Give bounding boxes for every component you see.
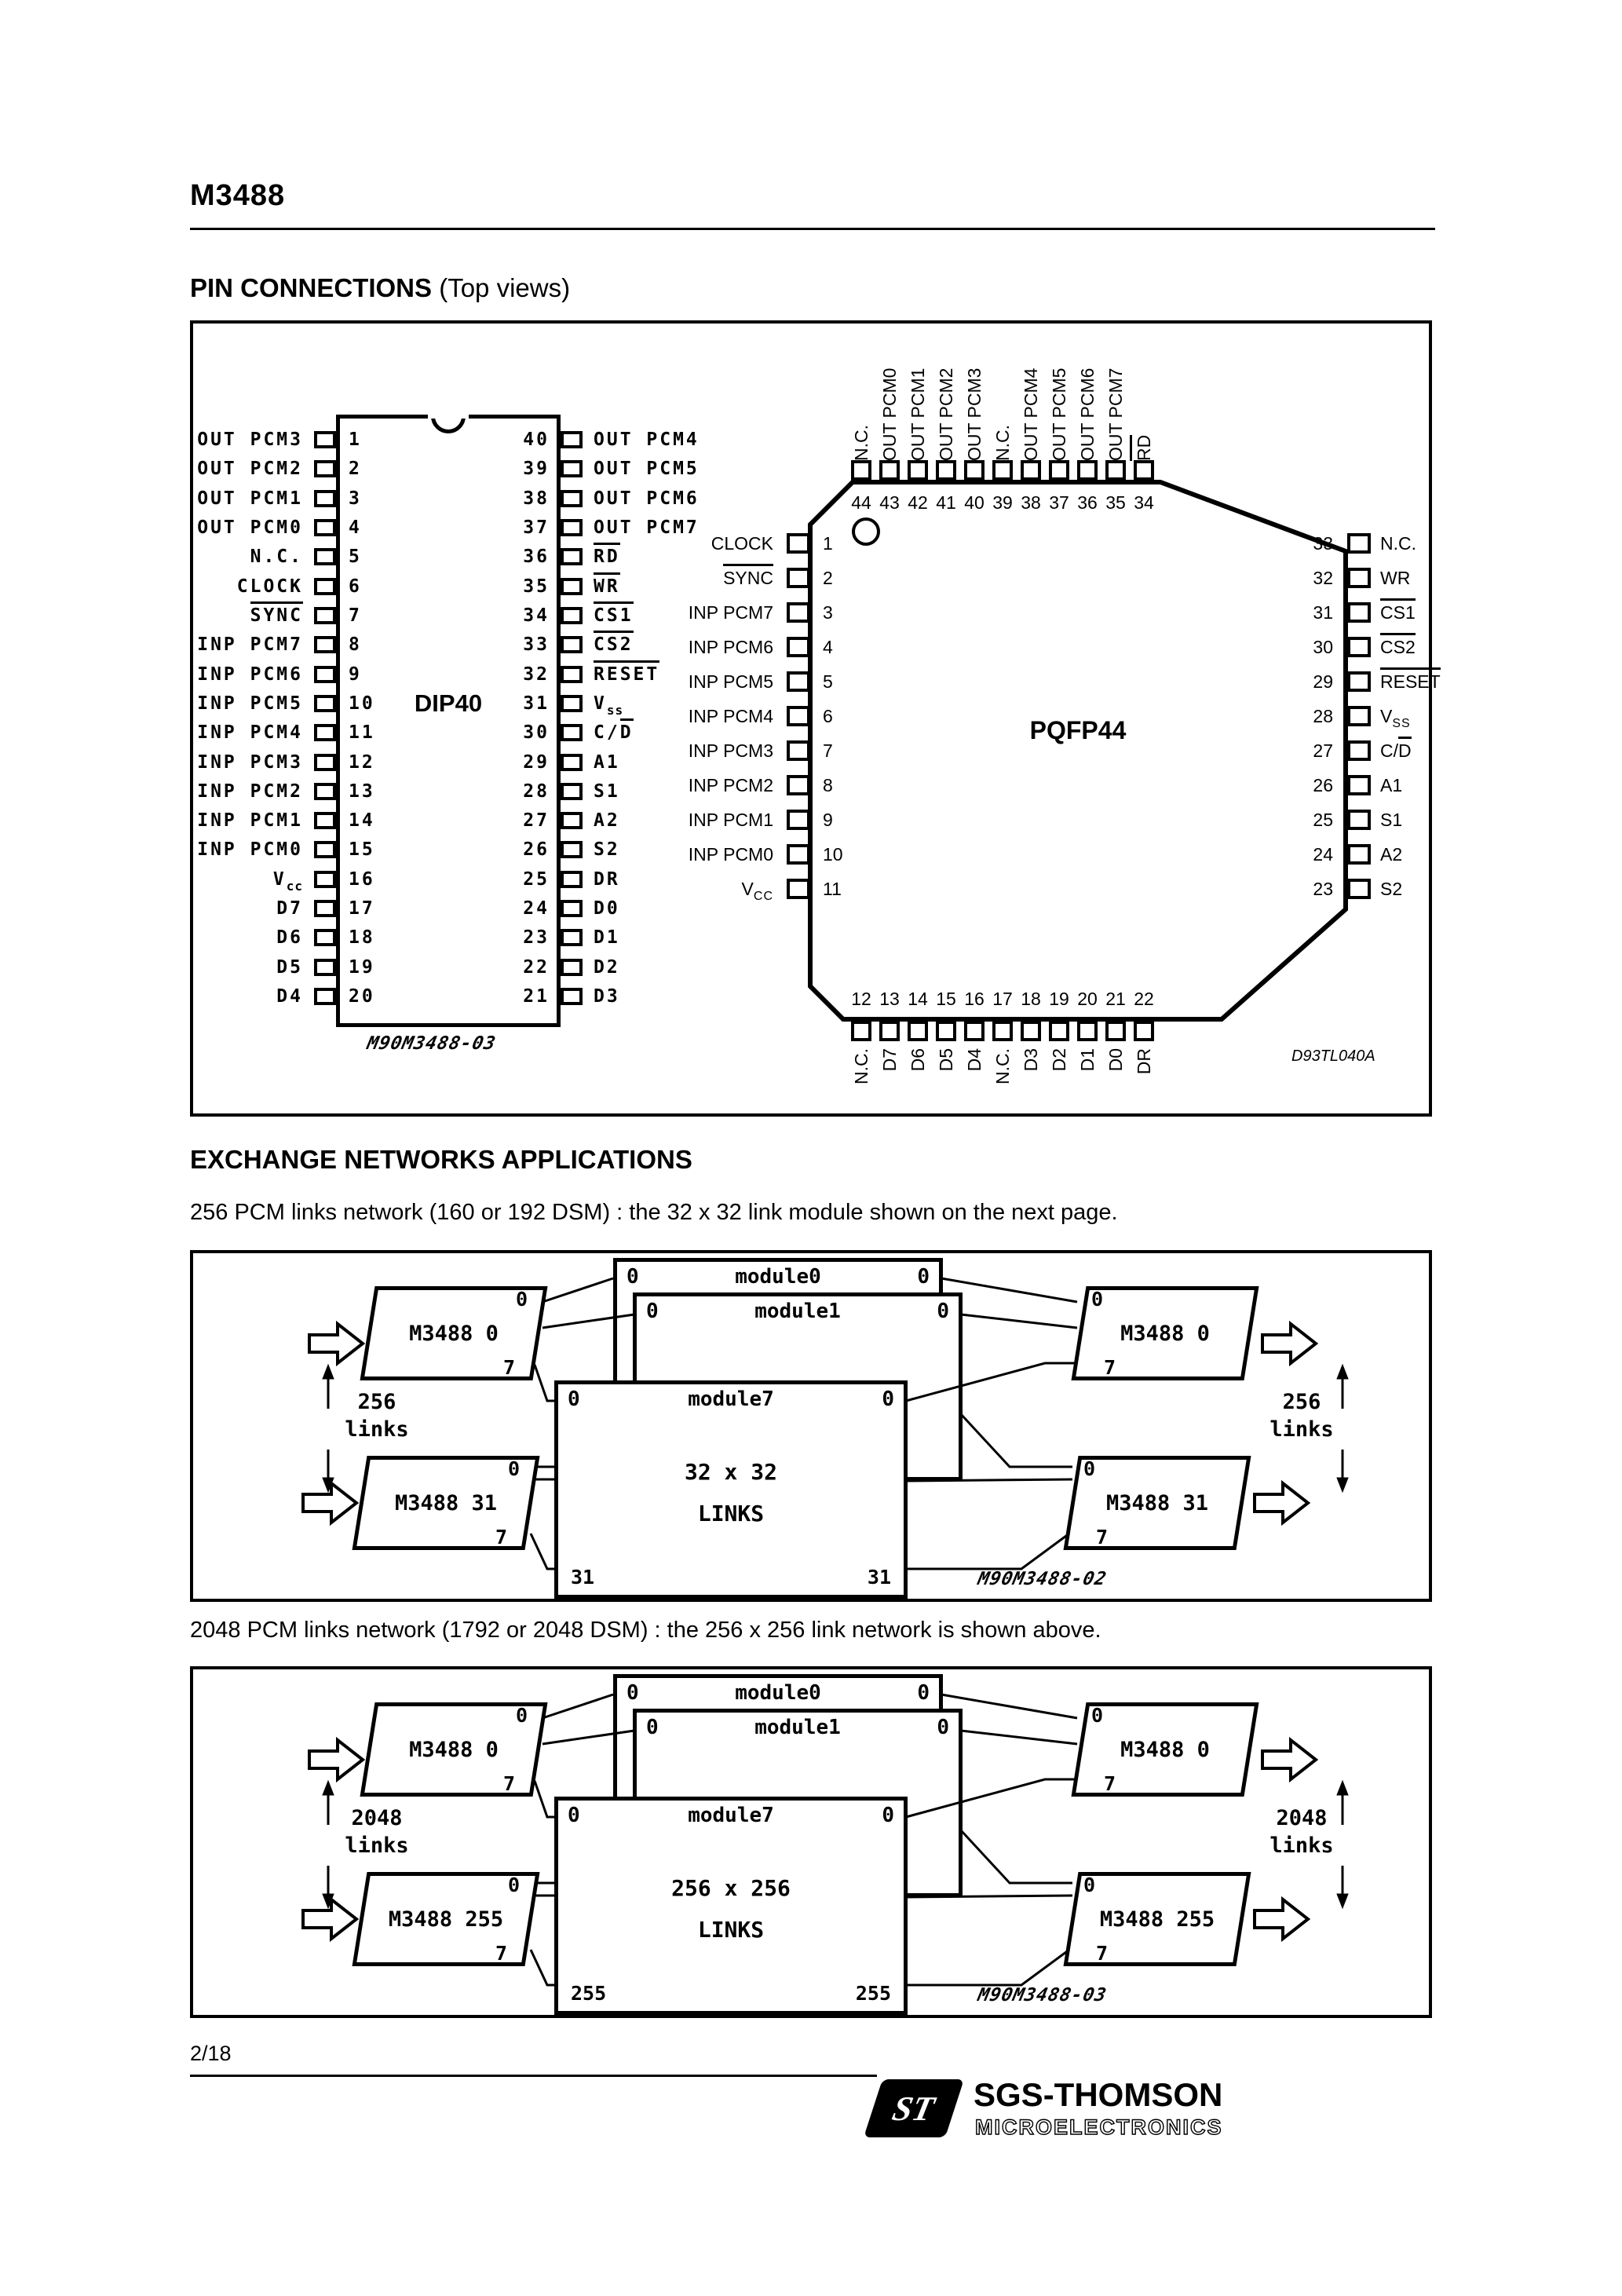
pin-label-text: D5	[936, 1048, 957, 1071]
pin-label-overline: RD	[1130, 435, 1155, 461]
pqfp44-pin-label-left: INP PCM2	[542, 774, 773, 796]
pin-label-overline: CS1	[1380, 598, 1416, 623]
pin-label-overline: SYNC	[723, 564, 773, 589]
output-arrow-icon	[1255, 1899, 1308, 1939]
pqfp44-pin-number-right: 33	[1278, 532, 1333, 554]
network-256-figure: 0module000module100module7032 x 32LINKS3…	[190, 1250, 1432, 1602]
pin-label-text: INP PCM6	[689, 637, 773, 658]
pin-label-text: N.C.	[250, 547, 303, 567]
dip40-pin-number-left: 4	[349, 516, 404, 538]
pin-label-text: D0	[1105, 1048, 1127, 1071]
pin-label-text: OUT PCM1	[908, 368, 929, 461]
dip40-pin-label-left: INP PCM4	[69, 721, 303, 743]
dip40-pin-label-left: OUT PCM1	[69, 487, 303, 509]
pqfp44-pin-number-bottom: 19	[1045, 988, 1073, 1010]
dip40-pin-box-left	[314, 431, 336, 448]
pin-label-text: A1	[1380, 775, 1402, 796]
pin-label-text: V	[273, 869, 287, 890]
pqfp44-pin-number-left: 3	[823, 601, 878, 623]
pin-label-text: D3	[594, 986, 620, 1007]
pin-label-text: DR	[1134, 1048, 1155, 1074]
pqfp44-pin-label-bottom: D1	[1076, 1048, 1098, 1166]
pqfp44-pin-label-left: INP PCM0	[542, 843, 773, 865]
pqfp44-pin-number-top: 38	[1017, 492, 1045, 514]
pqfp44-pin-box-bottom	[908, 1021, 928, 1041]
pqfp44-pin-number-right: 24	[1278, 843, 1333, 865]
pqfp44-pin-label-bottom: D7	[879, 1048, 901, 1166]
pqfp44-pin-number-right: 28	[1278, 705, 1333, 727]
pin-label-text: S1	[1380, 810, 1402, 831]
dip40-pin-number-right: 22	[493, 956, 550, 978]
page-number: 2/18	[190, 2042, 232, 2066]
header-rule	[190, 228, 1435, 230]
pin-label-text: OUT PCM3	[964, 368, 985, 461]
pqfp44-pin-box-right	[1347, 775, 1371, 795]
pin-label-text: INP PCM2	[689, 775, 773, 796]
pqfp44-pin-box-top	[1049, 460, 1069, 481]
section-pin-connections: PIN CONNECTIONS (Top views)	[190, 273, 570, 303]
dip40-pin-number-left: 11	[349, 721, 404, 743]
footer-rule	[190, 2075, 877, 2077]
pqfp44-pin-label-top: OUT PCM2	[935, 343, 957, 461]
dip40-pin-label-left: D7	[69, 897, 303, 919]
dip40-pin-label-left: INP PCM1	[69, 809, 303, 831]
pin-label-text: D0	[594, 898, 620, 919]
dip40-pin-box-left	[314, 959, 336, 976]
pqfp44-pin-number-top: 40	[960, 492, 988, 514]
pqfp44-pin-number-bottom: 12	[847, 988, 875, 1010]
input-arrow-icon	[303, 1899, 356, 1939]
network-256-caption: 256 PCM links network (160 or 192 DSM) :…	[190, 1200, 1118, 1226]
dip40-pin-label-left: INP PCM6	[69, 663, 303, 685]
pin-label-text: OUT PCM2	[197, 459, 303, 479]
page-title: M3488	[190, 179, 285, 213]
pin-label-text: N.C.	[1380, 533, 1416, 554]
pin-label-text: INP PCM1	[689, 810, 773, 831]
pin-label-text: D5	[276, 957, 303, 978]
dip40-pin-box-left	[314, 578, 336, 595]
section-pin-connections-suffix: (Top views)	[432, 273, 570, 302]
pqfp44-pin-number-bottom: 14	[904, 988, 932, 1010]
dip40-pin-number-right: 21	[493, 985, 550, 1007]
pqfp44-pin-label-right: S1	[1380, 809, 1576, 831]
pqfp44-pin-number-right: 26	[1278, 774, 1333, 796]
dip40-pin-label-left: INP PCM5	[69, 692, 303, 714]
dip40-pin-number-left: 8	[349, 633, 404, 655]
pqfp44-pin-number-bottom: 20	[1073, 988, 1101, 1010]
pqfp44-pin-number-left: 4	[823, 636, 878, 658]
pqfp44-pin-box-bottom	[936, 1021, 956, 1041]
pqfp44-pin-number-bottom: 15	[932, 988, 960, 1010]
dip40-pin-box-left	[314, 666, 336, 683]
pqfp44-pin-number-bottom: 13	[875, 988, 904, 1010]
pqfp44-pin-label-left: INP PCM1	[542, 809, 773, 831]
dip40-pin-box-right	[561, 900, 583, 917]
pin-label-text: N.C.	[851, 1048, 872, 1084]
pin-label-text: OUT PCM0	[879, 368, 901, 461]
pin-label-text: INP PCM0	[689, 844, 773, 865]
dip40-notch-mask	[428, 391, 469, 419]
dip40-pin-number-left: 7	[349, 604, 404, 626]
pin-label-overline: SYNC	[250, 601, 303, 626]
dip40-pin-box-left	[314, 783, 336, 800]
pin-label-text: OUT PCM3	[197, 430, 303, 450]
output-arrow-icon	[1255, 1483, 1308, 1523]
pin-label-text: N.C.	[992, 425, 1014, 461]
dip40-pin-box-left	[314, 607, 336, 624]
pqfp44-pin-box-left	[787, 671, 810, 692]
pqfp44-pin-label-top: OUT PCM4	[1020, 343, 1042, 461]
pqfp44-pin-box-bottom	[1105, 1021, 1126, 1041]
pin-label-text: INP PCM4	[689, 706, 773, 727]
dip40-pin-label-left: SYNC	[69, 604, 303, 626]
io-arrow-icons	[303, 1324, 1316, 1523]
pqfp44-pin-label-bottom: DR	[1133, 1048, 1155, 1166]
pin-label-text: INP PCM7	[689, 602, 773, 623]
datasheet-page: M3488 PIN CONNECTIONS (Top views) DIP40 …	[0, 0, 1622, 2296]
dip40-pin-number-left: 1	[349, 428, 404, 450]
pqfp44-pin-label-top: OUT PCM1	[907, 343, 929, 461]
dip40-pin-number-left: 3	[349, 487, 404, 509]
pqfp44-pin-number-bottom: 21	[1101, 988, 1130, 1010]
pqfp44-pin-box-top	[851, 460, 871, 481]
pqfp44-pin-label-bottom: D3	[1020, 1048, 1042, 1166]
dip40-pin-box-left	[314, 548, 336, 565]
pqfp44-pin-label-bottom: D6	[907, 1048, 929, 1166]
pqfp44-pin-number-top: 37	[1045, 492, 1073, 514]
dip40-pin-box-left	[314, 900, 336, 917]
dip40-pin-number-left: 17	[349, 897, 404, 919]
output-arrow-icon	[1262, 1740, 1316, 1779]
pqfp44-pin-label-top: RD	[1133, 343, 1155, 461]
pqfp44-pin-number-right: 31	[1278, 601, 1333, 623]
pqfp44-pin-label-right: CS1	[1380, 601, 1576, 623]
pqfp44-pin-label-bottom: D2	[1048, 1048, 1070, 1166]
pin-label-text: A2	[1380, 844, 1402, 865]
pin-label-text: N.C.	[992, 1048, 1014, 1084]
pin-label-text: OUT PCM0	[197, 517, 303, 538]
pqfp44-pin-number-left: 10	[823, 843, 878, 865]
dip40-pin-box-left	[314, 812, 336, 829]
dip40-pin-box-left	[314, 519, 336, 536]
pin-label-text: D2	[594, 957, 620, 978]
pqfp44-pin-box-left	[787, 775, 810, 795]
dip40-pin-label-left: INP PCM3	[69, 751, 303, 773]
pin-label-text: OUT PCM7	[1105, 368, 1127, 461]
dip40-pin-box-left	[314, 929, 336, 946]
pqfp44-pin-number-bottom: 18	[1017, 988, 1045, 1010]
pqfp44-pin-box-left	[787, 810, 810, 830]
pqfp44-pin-label-bottom: N.C.	[992, 1048, 1014, 1166]
pqfp44-pin-number-top: 41	[932, 492, 960, 514]
network-2048-caption: 2048 PCM links network (1792 or 2048 DSM…	[190, 1618, 1101, 1643]
dip40-pin-label-left: INP PCM0	[69, 838, 303, 860]
dip40-pin-box-right	[561, 490, 583, 507]
pqfp44-pin-number-left: 1	[823, 532, 878, 554]
dip40-pin-box-left	[314, 988, 336, 1005]
pin-label-text: OUT PCM2	[936, 368, 957, 461]
pqfp44-pin-label-bottom: D4	[963, 1048, 985, 1166]
pin-label-text: S2	[1380, 879, 1402, 900]
pin-label-text: INP PCM5	[689, 671, 773, 693]
pqfp44-pin-box-top	[908, 460, 928, 481]
pin-label-text: WR	[1380, 568, 1410, 589]
input-arrow-icon	[303, 1483, 356, 1523]
pqfp44-pin-label-right: S2	[1380, 878, 1576, 900]
dip40-pin-box-right	[561, 431, 583, 448]
pqfp44-pin-label-left: INP PCM7	[542, 601, 773, 623]
pin-label-text: OUT PCM4	[1021, 368, 1042, 461]
dip40-pin-box-right	[561, 988, 583, 1005]
dip40-pin-number-left: 10	[349, 692, 404, 714]
pin-label-text: OUT PCM6	[594, 488, 700, 509]
output-arrow-icon	[1262, 1324, 1316, 1363]
dip40-pin-label-left: N.C.	[69, 545, 303, 567]
pin-label-text: D7	[276, 898, 303, 919]
dip40-pin-box-right	[561, 460, 583, 477]
pin-label-text: V	[1380, 706, 1392, 727]
pin-label-text: INP PCM4	[197, 722, 303, 743]
pqfp44-pin-box-left	[787, 844, 810, 865]
dip40-pin-number-left: 13	[349, 780, 404, 802]
pin-label-overline: D	[1398, 737, 1412, 762]
pqfp44-pin-number-left: 9	[823, 809, 878, 831]
network-2048-figure: 0module000module100module70256 x 256LINK…	[190, 1666, 1432, 2018]
dip40-figure-code: M90M3488-03	[365, 1033, 498, 1054]
pqfp44-pin-label-left: INP PCM4	[542, 705, 773, 727]
pqfp44-pin-number-top: 39	[988, 492, 1017, 514]
dip40-pin-label-left: Vcc	[69, 868, 303, 890]
pqfp44-pin-number-left: 7	[823, 740, 878, 762]
dip40-pin-label-left: OUT PCM0	[69, 516, 303, 538]
pqfp44-pin-box-bottom	[851, 1021, 871, 1041]
dip40-pin-number-left: 15	[349, 838, 404, 860]
pqfp44-pin-label-top: N.C.	[992, 343, 1014, 461]
pqfp44-pin-label-left: INP PCM5	[542, 671, 773, 693]
pqfp44-pin-number-left: 11	[823, 878, 878, 900]
input-arrow-icon	[309, 1324, 363, 1363]
pqfp44-pin-number-bottom: 16	[960, 988, 988, 1010]
pin-label-text: INP PCM3	[689, 740, 773, 762]
pqfp44-pin-box-top	[1105, 460, 1126, 481]
dip40-pin-number-left: 14	[349, 809, 404, 831]
pin-label-text: INP PCM1	[197, 810, 303, 831]
pqfp44-pin-label-right: N.C.	[1380, 532, 1576, 554]
pin-label-subscript: CC	[754, 890, 773, 904]
pqfp44-pin-box-bottom	[1049, 1021, 1069, 1041]
pqfp44-pin-box-right	[1347, 602, 1371, 623]
pin-label-text: OUT PCM6	[1077, 368, 1098, 461]
pqfp44-pin-box-top	[1077, 460, 1098, 481]
pqfp44-pin-number-right: 23	[1278, 878, 1333, 900]
pqfp44-pin-number-left: 2	[823, 567, 878, 589]
pqfp44-pin-box-left	[787, 568, 810, 588]
dip40-pin-number-left: 12	[349, 751, 404, 773]
dip40-pin-number-left: 5	[349, 545, 404, 567]
brand-subtitle: MICROELECTRONICS	[975, 2115, 1223, 2140]
pin-label-text: OUT PCM1	[197, 488, 303, 509]
pin-label-text: INP PCM7	[197, 634, 303, 655]
dip40-pin-box-left	[314, 695, 336, 712]
pqfp44-pin-box-top	[879, 460, 900, 481]
dip40-pin-number-left: 9	[349, 663, 404, 685]
io-arrow-icons	[303, 1740, 1316, 1939]
dip40-pin-box-left	[314, 724, 336, 741]
pin-label-text: N.C.	[851, 425, 872, 461]
pin-label-text: INP PCM3	[197, 752, 303, 773]
network-connections	[193, 1669, 1435, 2021]
pqfp44-pin-number-top: 42	[904, 492, 932, 514]
dip40-pin-label-left: OUT PCM2	[69, 457, 303, 479]
input-arrow-icon	[309, 1740, 363, 1779]
pqfp44-pin-number-bottom: 22	[1130, 988, 1158, 1010]
pin-label-text: INP PCM0	[197, 839, 303, 860]
pqfp44-pin-number-top: 36	[1073, 492, 1101, 514]
links-span-arrows	[323, 1781, 1348, 1908]
brand-name: SGS-THOMSON	[974, 2076, 1222, 2114]
pqfp44-pin-box-top	[964, 460, 985, 481]
dip40-pin-label-left: INP PCM2	[69, 780, 303, 802]
pqfp44-pin-box-right	[1347, 879, 1371, 899]
pqfp44-pin-number-right: 32	[1278, 567, 1333, 589]
pqfp44-pin-box-right	[1347, 810, 1371, 830]
pin-label-text: OUT PCM5	[1049, 368, 1070, 461]
st-logo-text: ST	[890, 2089, 939, 2129]
pin-label-text: D6	[908, 1048, 929, 1071]
pqfp44-pin-box-left	[787, 740, 810, 761]
pin-label-text: C/	[1380, 740, 1398, 762]
pqfp44-pin-number-right: 25	[1278, 809, 1333, 831]
pqfp44-pin-box-left	[787, 533, 810, 554]
pin-label-overline: RESET	[1380, 667, 1441, 693]
pin-label-text: INP PCM6	[197, 664, 303, 685]
links-span-arrows	[323, 1365, 1348, 1492]
pqfp44-pin-label-right: WR	[1380, 567, 1576, 589]
dip40-pin-label-left: INP PCM7	[69, 633, 303, 655]
pqfp44-pin-box-bottom	[992, 1021, 1013, 1041]
network-connections	[193, 1253, 1435, 1605]
dip40-pin-box-left	[314, 490, 336, 507]
dip40-pin-number-right: 40	[493, 428, 550, 450]
pin-label-text: D1	[594, 927, 620, 948]
pqfp44-pin-box-top	[992, 460, 1013, 481]
dip40-pin-number-right: 39	[493, 457, 550, 479]
dip40-pin-number-left: 16	[349, 868, 404, 890]
pqfp44-pin-box-bottom	[1021, 1021, 1041, 1041]
pqfp44-pin-box-left	[787, 879, 810, 899]
pqfp44-pin-box-right	[1347, 844, 1371, 865]
dip40-pin-box-left	[314, 841, 336, 858]
pqfp44-pin-box-top	[1134, 460, 1154, 481]
pqfp44-pin-label-left: INP PCM6	[542, 636, 773, 658]
pin-label-text: D3	[1021, 1048, 1042, 1071]
pqfp44-pin-label-top: OUT PCM6	[1076, 343, 1098, 461]
pqfp44-pin-box-top	[936, 460, 956, 481]
dip40-pin-label-left: OUT PCM3	[69, 428, 303, 450]
dip40-pin-box-left	[314, 636, 336, 653]
pqfp44-pin-box-right	[1347, 568, 1371, 588]
dip40-pin-label-left: D5	[69, 956, 303, 978]
pqfp44-pin-number-right: 29	[1278, 671, 1333, 693]
pqfp44-pin-label-top: OUT PCM0	[879, 343, 901, 461]
pqfp44-pin-number-bottom: 17	[988, 988, 1017, 1010]
pqfp44-pin-box-left	[787, 706, 810, 726]
pqfp44-pin-number-left: 6	[823, 705, 878, 727]
section-pin-connections-title: PIN CONNECTIONS	[190, 273, 432, 302]
dip40-pin-box-left	[314, 754, 336, 771]
pqfp44-pin-number-top: 34	[1130, 492, 1158, 514]
dip40-pin-number-right: 38	[493, 487, 550, 509]
pqfp44-pin-number-left: 5	[823, 671, 878, 693]
pqfp44-pin-number-left: 8	[823, 774, 878, 796]
pqfp44-pin-number-top: 35	[1101, 492, 1130, 514]
pqfp44-pin-label-top: OUT PCM7	[1105, 343, 1127, 461]
pin-label-text: D1	[1077, 1048, 1098, 1071]
dip40-pin-number-left: 19	[349, 956, 404, 978]
pin-label-text: D4	[276, 986, 303, 1007]
pqfp44-pin-box-bottom	[879, 1021, 900, 1041]
dip40-pin-box-left	[314, 460, 336, 477]
pqfp44-pin-label-left: VCC	[542, 878, 773, 900]
pqfp44-pin-box-right	[1347, 740, 1371, 761]
pqfp44-figure-ref: D93TL040A	[1291, 1047, 1375, 1066]
pin-label-text: CLOCK	[711, 533, 773, 554]
pqfp44-pin-number-top: 43	[875, 492, 904, 514]
pqfp44-pin-box-bottom	[1134, 1021, 1154, 1041]
pqfp44-pin-label-right: RESET	[1380, 671, 1576, 693]
dip40-pin-number-right: 23	[493, 926, 550, 948]
pin-label-text: OUT PCM4	[594, 430, 700, 450]
section-exchange-title: EXCHANGE NETWORKS APPLICATIONS	[190, 1145, 692, 1175]
dip40-pin-box-left	[314, 871, 336, 888]
pin-label-text: D6	[276, 927, 303, 948]
dip40-pin-number-left: 20	[349, 985, 404, 1007]
pqfp44-pin-label-right: A2	[1380, 843, 1576, 865]
pqfp44-pin-box-right	[1347, 706, 1371, 726]
dip40-pin-box-right	[561, 959, 583, 976]
pqfp44-pin-box-right	[1347, 637, 1371, 657]
pin-label-text: V	[742, 879, 754, 900]
dip40-pin-label-left: CLOCK	[69, 575, 303, 597]
pqfp44-pin-label-left: CLOCK	[542, 532, 773, 554]
pin-label-text: OUT PCM5	[594, 459, 700, 479]
pqfp44-pin-label-top: OUT PCM3	[963, 343, 985, 461]
pqfp44-pin-box-top	[1021, 460, 1041, 481]
pqfp44-pin-label-bottom: D0	[1105, 1048, 1127, 1166]
pqfp44-pin-number-right: 27	[1278, 740, 1333, 762]
pin-label-subscript: cc	[287, 879, 303, 894]
pqfp44-pin-label-right: CS2	[1380, 636, 1576, 658]
dip40-pin-box-right	[561, 929, 583, 946]
dip40-pin-number-left: 18	[349, 926, 404, 948]
pqfp44-package-label: PQFP44	[980, 716, 1176, 745]
pqfp44-pin-box-bottom	[1077, 1021, 1098, 1041]
pin-label-overline: CS2	[1380, 633, 1416, 658]
pqfp44-pin-label-bottom: D5	[935, 1048, 957, 1166]
pin-label-text: D7	[879, 1048, 901, 1071]
st-logo-icon: ST	[864, 2079, 964, 2137]
pqfp44-pin-label-top: OUT PCM5	[1048, 343, 1070, 461]
pqfp44-pin-box-left	[787, 602, 810, 623]
dip40-pin-label-left: D4	[69, 985, 303, 1007]
pqfp44-pin-label-top: N.C.	[850, 343, 872, 461]
pin-label-text: INP PCM5	[197, 693, 303, 714]
pin-label-text: D4	[964, 1048, 985, 1071]
pqfp44-pin-box-right	[1347, 533, 1371, 554]
pqfp44-pin-box-bottom	[964, 1021, 985, 1041]
pqfp44-pin-box-right	[1347, 671, 1371, 692]
pqfp44-pin-number-top: 44	[847, 492, 875, 514]
